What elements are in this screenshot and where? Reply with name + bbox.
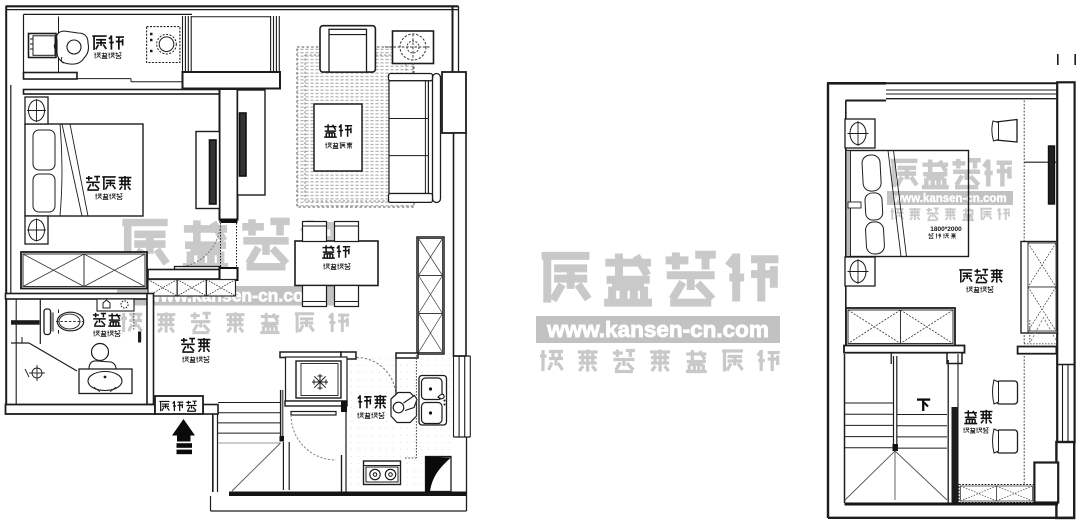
svg-text:www.kansen-cn.com: www.kansen-cn.com: [892, 193, 1006, 205]
svg-text:1800*2000: 1800*2000: [930, 226, 962, 233]
svg-text:www.kansen-cn.com: www.kansen-cn.com: [546, 317, 769, 342]
